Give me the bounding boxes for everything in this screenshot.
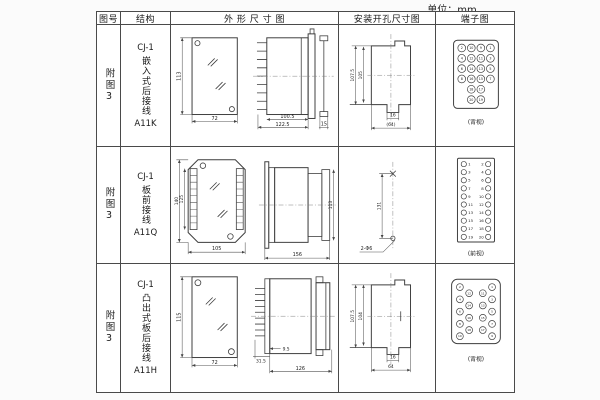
row1-code: A11K <box>134 119 156 129</box>
svg-text:6: 6 <box>459 310 461 314</box>
row1-fig-label: 附图3 <box>102 68 116 104</box>
svg-text:9: 9 <box>491 334 493 338</box>
terminal-pins <box>255 289 265 336</box>
svg-text:3: 3 <box>468 169 471 174</box>
svg-text:13: 13 <box>468 210 473 215</box>
svg-text:10: 10 <box>479 193 484 198</box>
row1-terminal-svg: 2109141211361413581615718172019 (背视) <box>437 26 513 146</box>
svg-text:1: 1 <box>468 161 471 166</box>
terminal-circles: 246810121416181113151713579 <box>456 284 495 340</box>
dim-label: 105 <box>211 246 220 252</box>
svg-text:20: 20 <box>469 97 473 101</box>
row2-front-view: 140 125 105 <box>173 159 244 253</box>
lever-mark <box>217 209 227 217</box>
svg-text:1: 1 <box>489 46 491 50</box>
row3-fig-no: 附图3 <box>97 264 121 392</box>
row3-terminal-drawing: 246810121416181113151713579 (背视) <box>436 264 514 392</box>
row1-install-drawing: 107.5 105 16 (64) <box>339 25 436 147</box>
terminal-circles: 1234567891011121314151617181920 <box>461 161 491 239</box>
svg-text:5: 5 <box>491 310 493 314</box>
row3-code: A11H <box>134 366 157 376</box>
svg-text:7: 7 <box>468 185 471 190</box>
row1-outline-drawing: 113 72 100.5 <box>171 25 339 147</box>
svg-text:2: 2 <box>481 161 484 166</box>
dim-label: 131 <box>376 201 382 210</box>
dim-label: 125 <box>179 194 185 203</box>
hole-callout: 2-Φ6 <box>360 246 372 252</box>
row3-install-drawing: 107.5 104 16 64 <box>339 264 436 392</box>
svg-text:15: 15 <box>481 316 485 320</box>
row2-type: 板前接线 <box>139 185 152 225</box>
svg-text:11: 11 <box>468 201 473 206</box>
svg-text:19: 19 <box>468 234 473 239</box>
row2-side-view: 156 113 <box>258 161 335 259</box>
svg-text:12: 12 <box>479 201 484 206</box>
row3-outline-svg: 115 72 31.5 <box>172 265 338 391</box>
svg-text:13: 13 <box>481 304 485 308</box>
row2-code: A11Q <box>134 228 157 238</box>
dim-label: 156 <box>292 252 301 258</box>
svg-text:6: 6 <box>461 66 463 70</box>
dim-label: 31.5 <box>256 358 266 364</box>
view-caption: (前视) <box>468 249 484 257</box>
row1-fig-no: 附图3 <box>97 25 121 147</box>
row2-outline-drawing: 140 125 105 156 <box>171 147 339 264</box>
dim-label: 16 <box>390 112 396 118</box>
row1-model: CJ-1 <box>137 43 154 53</box>
row2-fig-no: 附图3 <box>97 147 121 264</box>
dim-label: (64) <box>386 122 395 128</box>
svg-text:16: 16 <box>467 316 471 320</box>
svg-text:1: 1 <box>491 285 493 289</box>
svg-text:17: 17 <box>481 328 485 332</box>
lever-mark <box>209 182 219 190</box>
svg-text:7: 7 <box>489 77 491 81</box>
lever-mark <box>215 82 225 90</box>
dim-label: 100.5 <box>280 113 294 119</box>
row3-front-view: 115 72 <box>176 277 237 368</box>
svg-text:14: 14 <box>469 66 473 70</box>
row1-outline-svg: 113 72 100.5 <box>172 26 338 146</box>
svg-text:5: 5 <box>468 177 471 182</box>
dim-label: 15 <box>320 121 326 127</box>
row1-side-view: 100.5 122.5 15 <box>253 28 334 128</box>
col-header-terminal: 端子图 <box>436 12 514 25</box>
col-header-structure: 结构 <box>121 12 171 25</box>
svg-text:10: 10 <box>469 46 473 50</box>
row2-install-drawing: 131 2-Φ6 <box>339 147 436 264</box>
dim-label: 64 <box>388 364 394 370</box>
datasheet-page: 单位：mm 图号 结构 外 形 尺 寸 图 安装开孔尺寸图 端子图 附图3 CJ… <box>0 0 600 400</box>
svg-text:17: 17 <box>468 226 473 231</box>
terminal-block-outline <box>457 158 494 242</box>
svg-text:15: 15 <box>468 218 473 223</box>
row1-structure: CJ-1 嵌入式后接线 A11K <box>121 25 171 147</box>
dim-label: 113 <box>176 71 182 80</box>
dim-label: 140 <box>173 196 179 205</box>
svg-text:4: 4 <box>481 169 484 174</box>
dim-label: 72 <box>211 115 217 121</box>
dim-label: 113 <box>328 200 334 209</box>
view-caption: (背视) <box>468 355 484 363</box>
svg-text:8: 8 <box>461 77 463 81</box>
svg-text:16: 16 <box>469 77 473 81</box>
row2-model: CJ-1 <box>137 172 154 182</box>
svg-text:4: 4 <box>459 297 461 301</box>
dim-label: 107.5 <box>350 310 356 323</box>
svg-text:2: 2 <box>459 285 461 289</box>
svg-text:17: 17 <box>479 87 483 91</box>
svg-text:18: 18 <box>469 87 473 91</box>
svg-text:12: 12 <box>469 56 473 60</box>
svg-text:8: 8 <box>459 322 461 326</box>
row3-structure: CJ-1 凸出式板后接线 A11H <box>121 264 171 392</box>
row3-type: 凸出式板后接线 <box>139 293 152 363</box>
lever-mark <box>217 323 227 331</box>
row2-install-svg: 131 2-Φ6 <box>340 148 435 263</box>
row3-fig-label: 附图3 <box>102 310 116 346</box>
dim-label: 16 <box>390 354 396 360</box>
row3-side-view: 31.5 9.5 126 <box>251 277 336 373</box>
lever-mark <box>207 58 217 66</box>
svg-text:3: 3 <box>491 297 493 301</box>
terminal-circles: 2109141211361413581615718172019 <box>458 44 494 103</box>
col-header-fig-no: 图号 <box>97 12 121 25</box>
row2-outline-svg: 140 125 105 156 <box>172 148 338 263</box>
row3-terminal-svg: 246810121416181113151713579 (背视) <box>437 265 513 391</box>
svg-text:15: 15 <box>479 77 483 81</box>
hook-mark <box>310 28 314 33</box>
svg-text:9: 9 <box>480 46 482 50</box>
svg-text:19: 19 <box>479 97 483 101</box>
svg-text:8: 8 <box>481 185 484 190</box>
svg-text:16: 16 <box>479 218 484 223</box>
svg-text:3: 3 <box>489 56 491 60</box>
svg-text:9: 9 <box>468 193 471 198</box>
view-caption: (背视) <box>468 118 484 126</box>
svg-text:11: 11 <box>479 56 483 60</box>
col-header-outline: 外 形 尺 寸 图 <box>171 12 339 25</box>
row1-terminal-drawing: 2109141211361413581615718172019 (背视) <box>436 25 514 147</box>
dim-label: 104 <box>358 312 364 321</box>
svg-text:10: 10 <box>458 334 462 338</box>
svg-text:12: 12 <box>467 291 471 295</box>
svg-text:18: 18 <box>479 226 484 231</box>
svg-text:6: 6 <box>481 177 484 182</box>
dimension-table: 图号 结构 外 形 尺 寸 图 安装开孔尺寸图 端子图 附图3 CJ-1 嵌入式… <box>96 11 515 393</box>
col-header-install: 安装开孔尺寸图 <box>339 12 436 25</box>
dim-label: 9.5 <box>282 347 289 353</box>
svg-text:7: 7 <box>491 322 493 326</box>
svg-text:13: 13 <box>479 66 483 70</box>
row1-type: 嵌入式后接线 <box>139 56 152 116</box>
dim-label: 126 <box>295 366 304 372</box>
lever-mark <box>205 297 215 305</box>
terminal-block-outline <box>454 40 499 108</box>
svg-text:14: 14 <box>467 304 471 308</box>
svg-text:2: 2 <box>461 46 463 50</box>
dim-label: 122.5 <box>275 121 289 127</box>
svg-text:18: 18 <box>467 328 471 332</box>
dim-label: 115 <box>176 312 182 321</box>
svg-text:11: 11 <box>481 291 485 295</box>
row2-terminal-drawing: 1234567891011121314151617181920 (前视) <box>436 147 514 264</box>
row2-fig-label: 附图3 <box>102 187 116 223</box>
row3-outline-drawing: 115 72 31.5 <box>171 264 339 392</box>
row2-structure: CJ-1 板前接线 A11Q <box>121 147 171 264</box>
svg-text:20: 20 <box>479 234 484 239</box>
row1-front-view: 113 72 <box>176 37 237 123</box>
dim-label: 72 <box>211 360 217 366</box>
row3-install-svg: 107.5 104 16 64 <box>340 265 435 391</box>
dim-label: 105 <box>358 70 364 79</box>
row2-terminal-svg: 1234567891011121314151617181920 (前视) <box>437 148 513 263</box>
svg-text:5: 5 <box>489 66 491 70</box>
svg-text:4: 4 <box>461 56 463 60</box>
row3-model: CJ-1 <box>137 280 154 290</box>
dim-label: 107.5 <box>350 68 356 81</box>
svg-text:14: 14 <box>479 210 484 215</box>
row1-install-svg: 107.5 105 16 (64) <box>340 26 435 146</box>
